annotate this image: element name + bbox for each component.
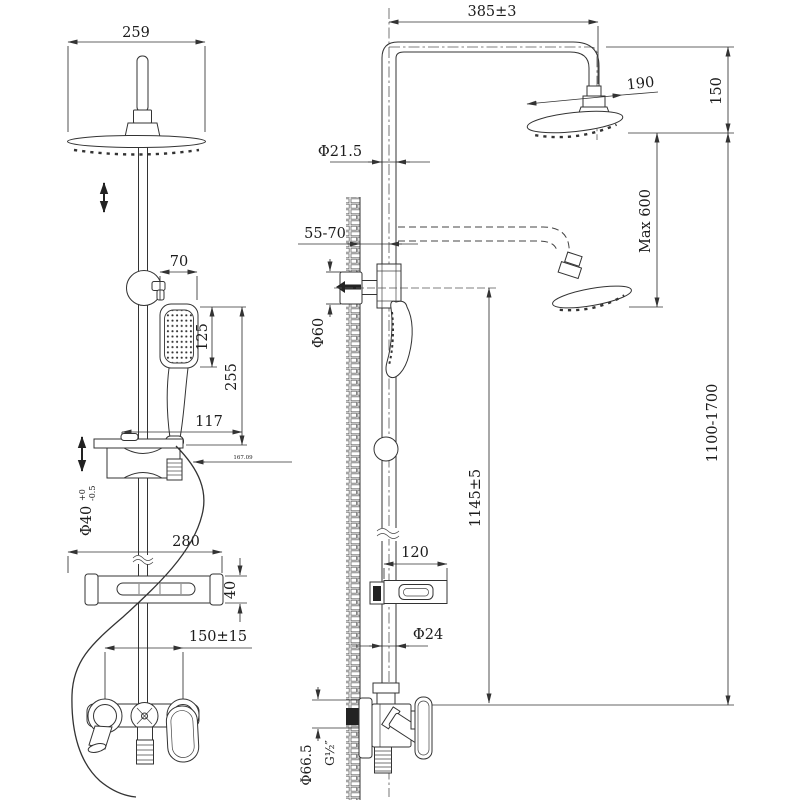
side-view: 385±3 190 150 Max 600 1100-1700 (298, 4, 734, 800)
dim-shelf-width-label: 280 (172, 534, 200, 550)
side-overhead-shower-lowered (551, 282, 633, 315)
side-hand-shower (374, 301, 412, 461)
dim-escutcheon-dia-label: Φ66.5 (299, 744, 315, 785)
dim-shelf-height-label: 40 (223, 581, 239, 599)
side-shower-arm-upper (382, 42, 624, 141)
dim-handset-width-label: 70 (170, 254, 188, 270)
dim-handset-face-label: 125 (195, 323, 211, 351)
handset-spray-face (165, 310, 194, 363)
dim-bracket-note-label: 167.09 (233, 455, 253, 461)
shower-drawing-svg: 259 70 125 (0, 0, 800, 800)
dim-shelf-width: 280 (68, 534, 222, 573)
slider-knob (157, 290, 164, 300)
dim-rail-dia-label: Φ24 (413, 627, 443, 643)
mixer-handle (166, 705, 200, 763)
dim-max-adjust-label: Max 600 (638, 189, 654, 253)
dim-handset-width: 70 (160, 254, 197, 300)
dim-slider-dia-tol-upper: +0 (78, 489, 87, 501)
dim-overall-height: 1100-1700 (432, 133, 734, 705)
dim-shelf-depth-label: 120 (401, 545, 429, 561)
side-overhead-shower (526, 108, 624, 141)
dim-arm-reach: 385±3 (389, 4, 598, 84)
valve-escutcheon (359, 698, 372, 758)
dim-head-width-label: 259 (122, 25, 150, 41)
dim-overall-height-label: 1100-1700 (705, 384, 721, 463)
side-shower-arm-lower (398, 227, 633, 315)
dim-slider-dia-label: Φ40 (79, 506, 95, 536)
dim-bracket-dia-label: Φ60 (311, 318, 327, 348)
dim-head-drop-label: 150 (709, 77, 725, 105)
dim-supply-centers-label: 150±15 (189, 629, 247, 645)
dim-max-adjust: Max 600 (629, 133, 663, 307)
dim-slider-dia-tol-lower: -0.5 (88, 486, 97, 501)
dim-shelf-height: 40 (223, 558, 247, 622)
dim-rail-dia: Φ24 (352, 627, 443, 646)
dim-thread-label: G½″ (323, 740, 337, 766)
clamp-screw (167, 459, 182, 480)
wall-supply-inlet (346, 708, 360, 725)
front-overhead-shower (68, 56, 206, 155)
dim-handset-face: 125 (195, 307, 246, 367)
front-view: 259 70 125 (68, 25, 293, 797)
dim-pipe-dia-label: Φ21.5 (318, 144, 362, 160)
dim-wall-distance-label: 55-70 (304, 226, 346, 242)
side-pipe-break (376, 528, 399, 539)
dim-bracket-height-label: 1145±5 (468, 469, 484, 527)
front-mixer (87, 699, 199, 764)
front-slider-bracket (127, 271, 166, 306)
valve-handle-side (415, 697, 432, 759)
hose-nipple (137, 740, 154, 764)
front-slide-rail (139, 147, 148, 705)
front-rail-clamp (94, 434, 183, 481)
dim-head-drop: 150 (606, 47, 734, 133)
dim-bracket-height: 1145±5 (468, 288, 489, 703)
dim-bracket-note: 167.09 (193, 455, 292, 462)
dim-head-dia-label: 190 (626, 75, 655, 94)
dim-bracket-width-label: 117 (195, 414, 223, 430)
slider-knob-side (374, 437, 398, 461)
front-shelf (85, 574, 223, 605)
technical-drawing-page: 259 70 125 (0, 0, 800, 800)
front-head-nozzles (74, 150, 199, 155)
front-hand-shower (160, 304, 198, 447)
dim-slider-dia: Φ40 +0 -0.5 (78, 486, 97, 537)
dim-supply-centers: 150±15 (105, 629, 252, 702)
dim-handset-length-label: 255 (224, 363, 240, 391)
dim-bracket-dia: Φ60 (311, 259, 341, 348)
front-rail-break (133, 555, 154, 565)
side-shelf (370, 581, 447, 605)
dim-arm-reach-label: 385±3 (467, 4, 516, 20)
dim-pipe-dia: Φ21.5 (318, 144, 430, 162)
